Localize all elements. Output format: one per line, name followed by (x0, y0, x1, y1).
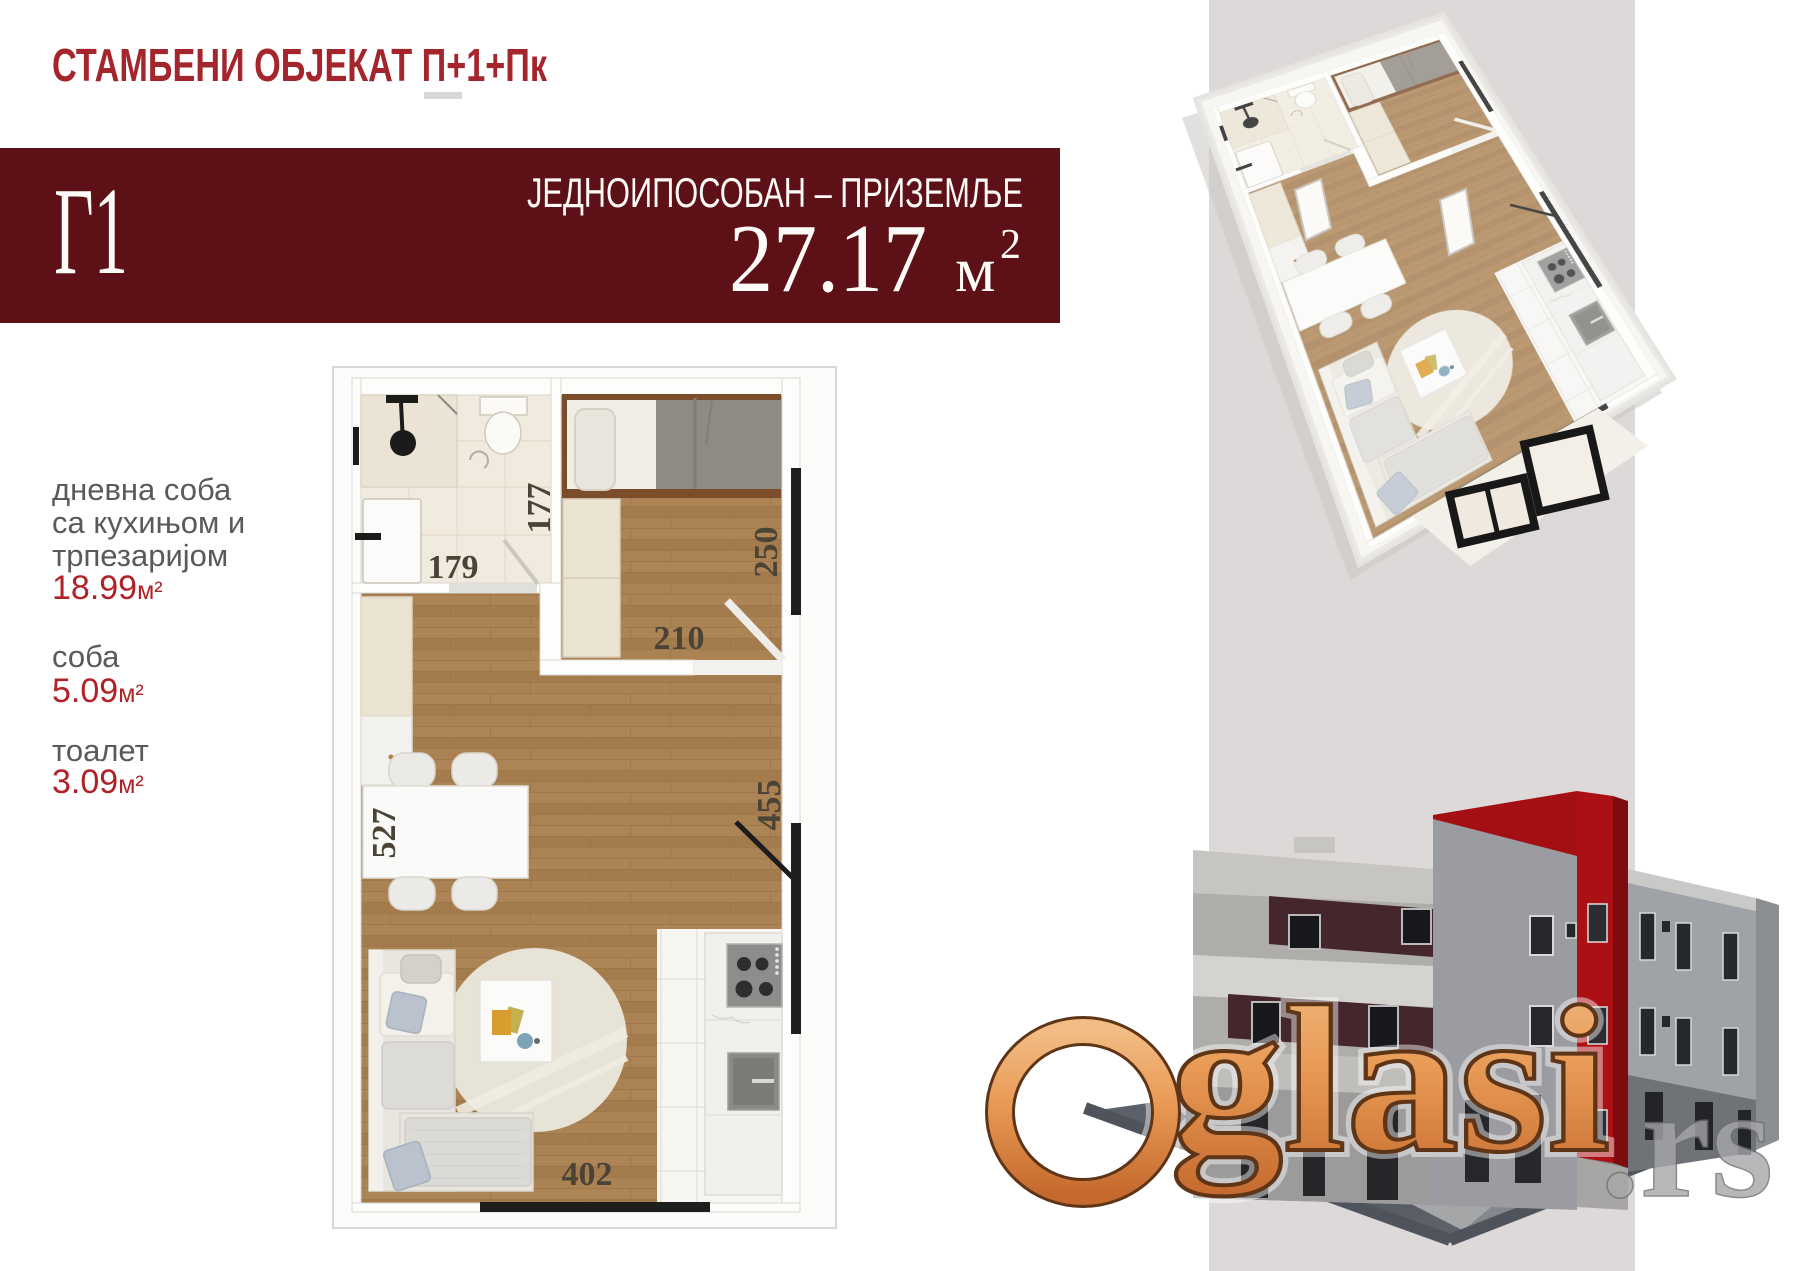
svg-text:210: 210 (654, 620, 705, 657)
svg-text:527: 527 (366, 808, 403, 859)
svg-text:18.99м²: 18.99м² (52, 569, 163, 607)
svg-text:250: 250 (748, 527, 785, 578)
svg-text:.rs: .rs (1600, 1053, 1773, 1231)
svg-text:179: 179 (428, 549, 479, 586)
svg-text:Г1: Г1 (54, 163, 128, 301)
svg-text:соба: соба (52, 639, 120, 674)
svg-text:455: 455 (751, 780, 788, 831)
svg-text:glasi: glasi (1170, 964, 1610, 1196)
svg-text:СТАМБЕНИ ОБЈЕКАТ П+1+Пк: СТАМБЕНИ ОБЈЕКАТ П+1+Пк (52, 39, 548, 91)
svg-text:5.09м²: 5.09м² (52, 672, 144, 710)
svg-text:402: 402 (562, 1156, 613, 1193)
svg-text:са кухињом и: са кухињом и (52, 505, 245, 540)
svg-text:27.17: 27.17 (729, 205, 927, 312)
svg-text:3.09м²: 3.09м² (52, 763, 144, 801)
svg-text:177: 177 (521, 483, 558, 534)
svg-text:м: м (955, 234, 996, 305)
svg-text:трпезаријом: трпезаријом (52, 538, 228, 573)
svg-text:дневна соба: дневна соба (52, 472, 232, 507)
svg-text:2: 2 (1000, 222, 1021, 268)
